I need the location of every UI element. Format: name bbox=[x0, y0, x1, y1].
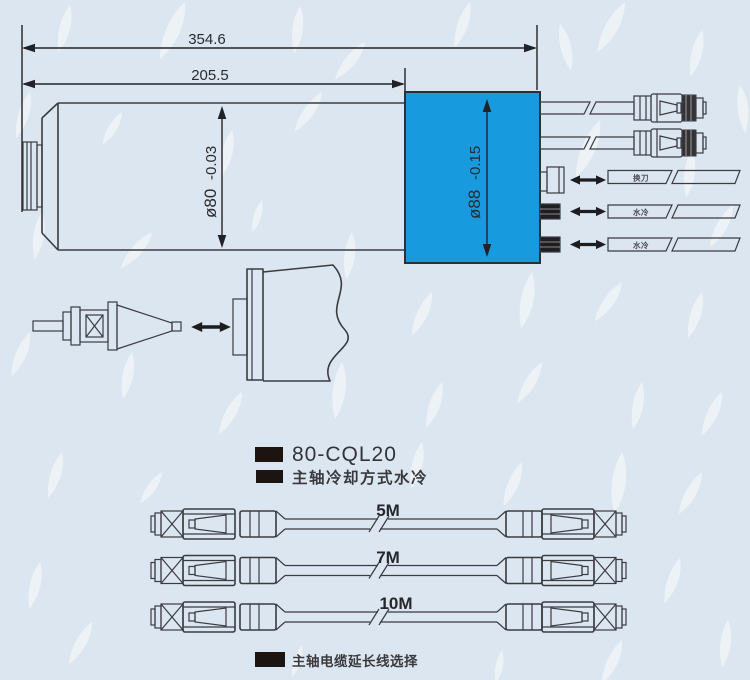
model-bullet bbox=[255, 447, 283, 462]
cable-length-label-7m: 7M bbox=[376, 548, 400, 567]
model-label: 80-CQL20 bbox=[292, 443, 397, 466]
spindle-diagram: 354.6 205.5 ø80 -0.03 ø88 bbox=[0, 0, 750, 680]
overall-length-value: 354.6 bbox=[188, 31, 226, 48]
water-port-1 bbox=[540, 204, 560, 219]
hose-label-tool-change: 换刀 bbox=[633, 173, 649, 183]
hose-label-water-1: 水冷 bbox=[633, 207, 649, 217]
rear-diameter-tolerance: -0.15 bbox=[467, 146, 484, 180]
cable-note-label: 主轴电缆延长线选择 bbox=[292, 653, 418, 669]
diagram-canvas: 354.6 205.5 ø80 -0.03 ø88 bbox=[0, 0, 750, 680]
body-length-value: 205.5 bbox=[191, 67, 229, 84]
rear-diameter-value: ø88 bbox=[465, 190, 484, 219]
cable-note-bullet bbox=[255, 652, 285, 667]
cooling-bullet bbox=[256, 470, 283, 483]
hose-label-water-2: 水冷 bbox=[633, 240, 649, 250]
rear-housing-block: ø88 -0.15 bbox=[405, 92, 540, 263]
cable-length-label-10m: 10M bbox=[379, 594, 412, 613]
page-background bbox=[0, 0, 750, 680]
cable-length-label-5m: 5M bbox=[376, 501, 400, 520]
body-diameter-tolerance: -0.03 bbox=[203, 146, 220, 180]
cable-note-caption: 主轴电缆延长线选择 bbox=[255, 652, 418, 669]
body-diameter-value: ø80 bbox=[201, 189, 220, 218]
cooling-label: 主轴冷却方式水冷 bbox=[292, 468, 428, 487]
water-port-2 bbox=[540, 237, 560, 252]
